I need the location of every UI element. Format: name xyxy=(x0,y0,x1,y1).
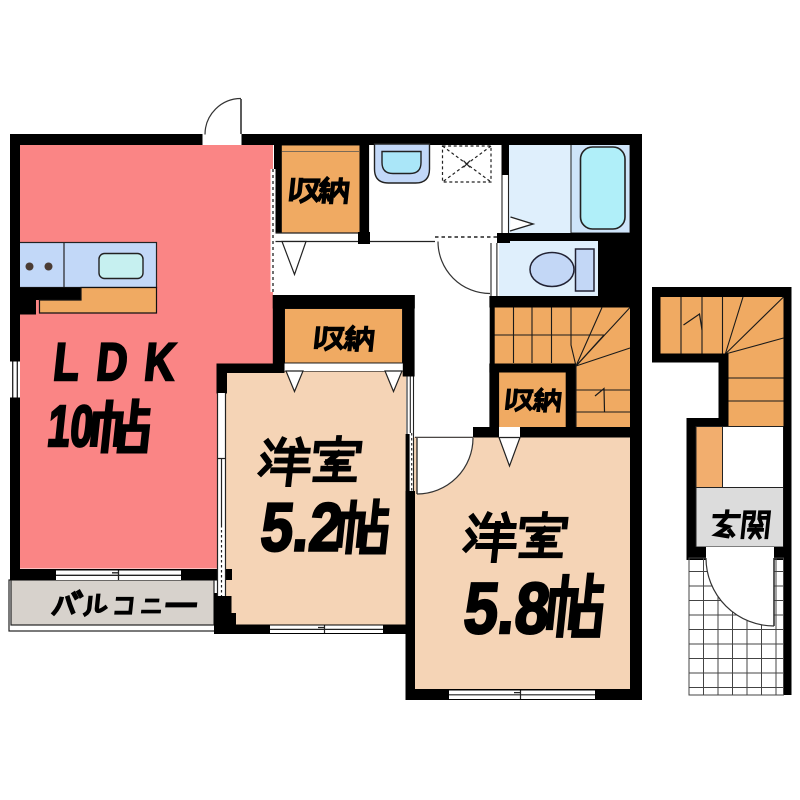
svg-text:10: 10 xyxy=(45,394,97,459)
svg-text:LDK: LDK xyxy=(51,333,196,392)
svg-text:5.2: 5.2 xyxy=(257,490,345,565)
svg-text:5.8: 5.8 xyxy=(460,569,554,650)
